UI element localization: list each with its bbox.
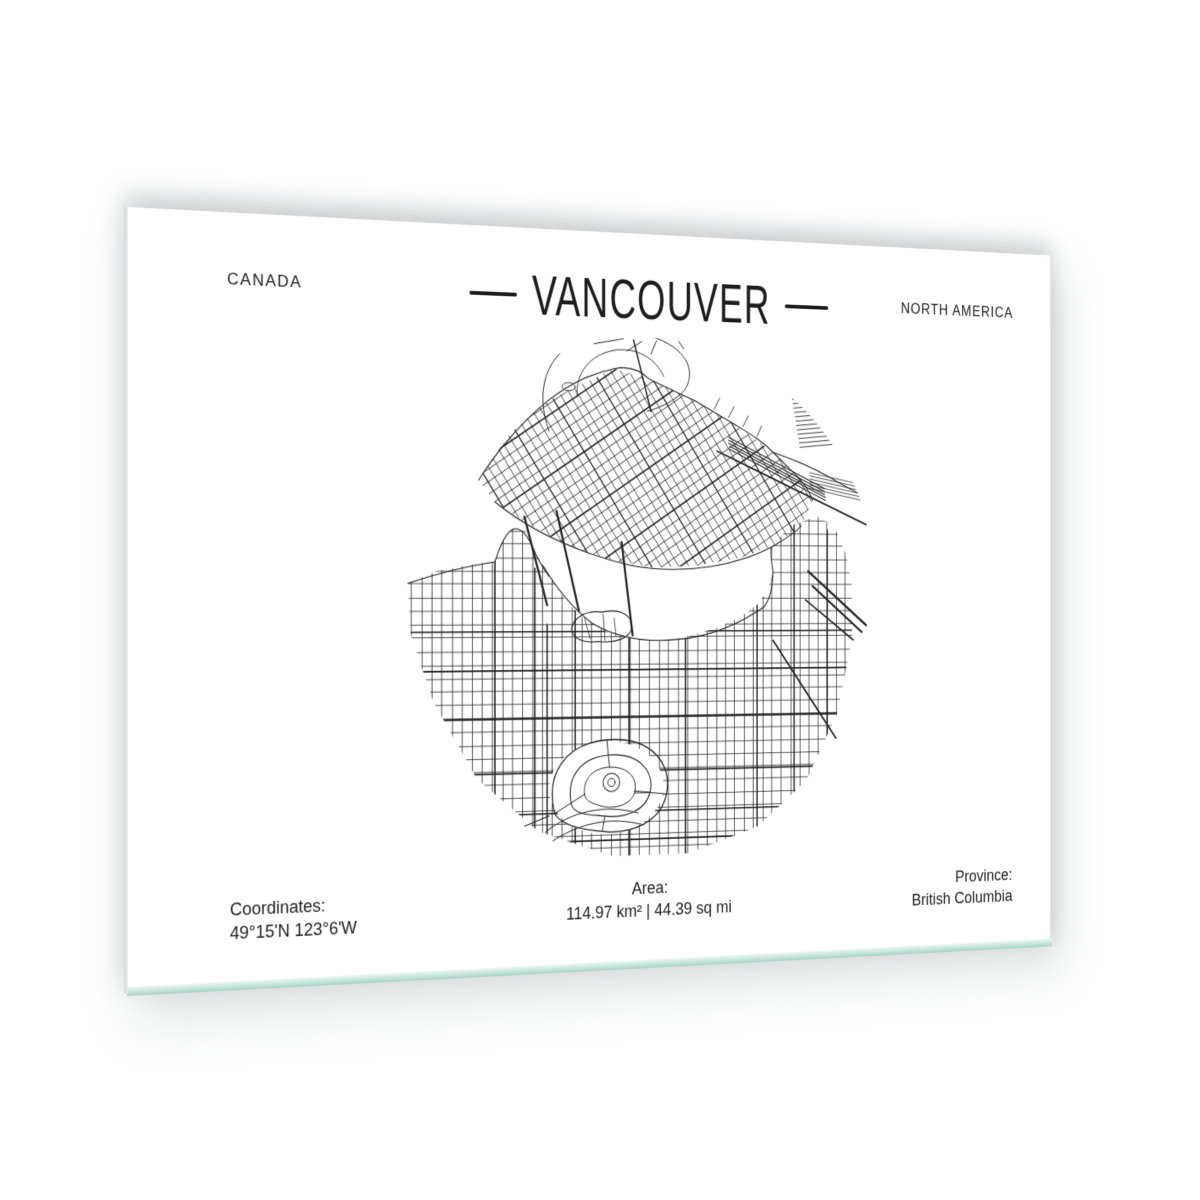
province-block: Province: British Columbia (912, 865, 1013, 912)
product-photo-background: CANADA VANCOUVER NORTH AMERICA Coordinat… (0, 0, 1200, 1200)
glass-edge-left (124, 207, 128, 993)
continent-label: NORTH AMERICA (901, 301, 1013, 322)
vancouver-street-map (403, 327, 879, 870)
glass-edge-bottom (127, 938, 1052, 996)
coordinates-block: Coordinates: 49°15'N 123°6'W (230, 894, 357, 946)
province-value: British Columbia (912, 886, 1013, 912)
title-dash-left-icon (469, 290, 517, 296)
glass-print-panel: CANADA VANCOUVER NORTH AMERICA Coordinat… (128, 207, 1051, 987)
coordinates-value: 49°15'N 123°6'W (230, 917, 357, 946)
country-label: CANADA (227, 269, 302, 292)
area-block: Area: 114.97 km² | 44.39 sq mi (566, 874, 732, 925)
title-dash-right-icon (784, 304, 827, 310)
city-title: VANCOUVER (532, 262, 771, 336)
city-title-row: VANCOUVER (469, 259, 827, 339)
